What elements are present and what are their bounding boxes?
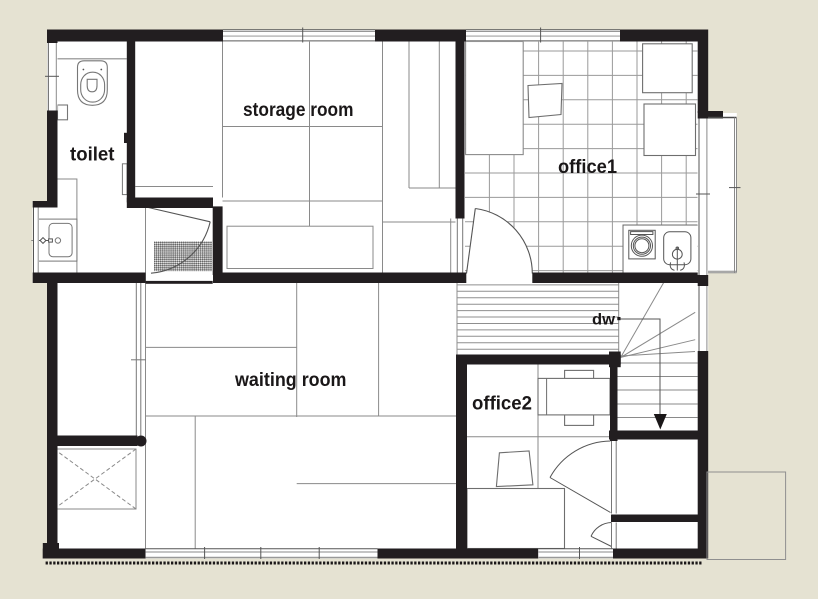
- svg-text:waiting room: waiting room: [234, 369, 346, 391]
- svg-text:office2: office2: [472, 392, 532, 414]
- svg-text:office1: office1: [558, 156, 617, 178]
- svg-text:storage room: storage room: [243, 99, 354, 121]
- svg-text:dw: dw: [592, 311, 616, 328]
- svg-text:toilet: toilet: [70, 143, 115, 165]
